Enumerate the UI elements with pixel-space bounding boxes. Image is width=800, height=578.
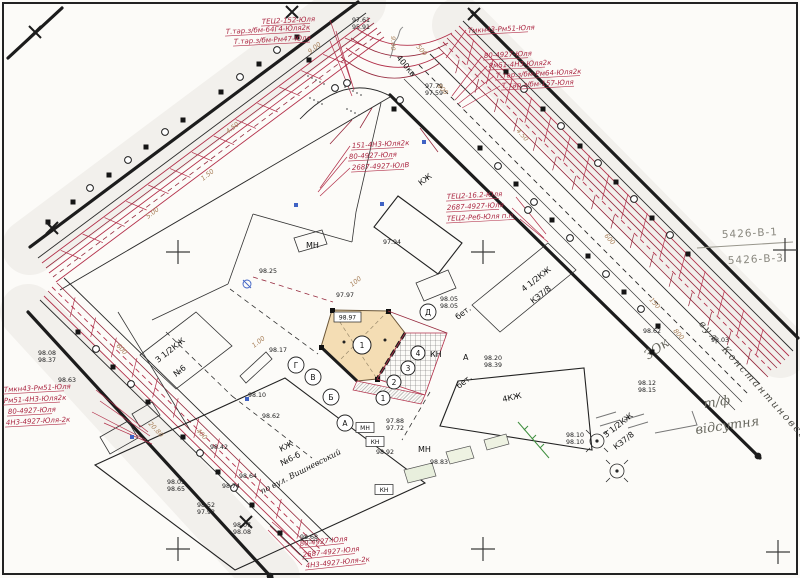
manhole-circle	[525, 207, 532, 214]
manhole-circle	[567, 235, 574, 242]
pole-square	[250, 503, 255, 508]
elevation-label: 98.39	[484, 362, 502, 369]
red-utility-annotation: 80-4927-Юля	[8, 405, 56, 416]
pole-square	[181, 118, 186, 123]
circled-number-label: 3	[406, 364, 411, 373]
pole-square	[216, 470, 221, 475]
pole-square	[614, 180, 619, 185]
elevation-label: 98.05	[440, 303, 458, 310]
handwritten-tf: т/ф	[702, 393, 731, 412]
elevation-box-value: 98.97	[339, 315, 356, 322]
manhole-circle	[162, 129, 169, 136]
elevation-label: 98.92	[376, 449, 394, 456]
elevation-label: 97.88	[386, 418, 404, 425]
distance-label: 5.00	[144, 205, 160, 220]
building-type-label: КН	[430, 350, 442, 359]
pole-square	[686, 252, 691, 257]
ground-dot	[350, 110, 352, 112]
ground-dot	[354, 112, 356, 114]
manhole-circle	[603, 271, 610, 278]
elevation-label: 98.63	[58, 377, 76, 384]
survey-plan-scan: 98.97	[0, 0, 800, 578]
cable-tick	[276, 499, 281, 518]
ground-dot	[358, 114, 360, 116]
manhole-circle	[344, 80, 351, 87]
cable-tick	[153, 378, 158, 397]
circled-number-label: 4	[416, 349, 421, 358]
manhole-circle	[495, 163, 502, 170]
circled-number-label: 1	[381, 394, 386, 403]
grid-cross	[471, 537, 495, 561]
circled-letter-label: В	[310, 373, 315, 382]
elevation-label: 97.94	[383, 239, 401, 246]
manhole-circle	[558, 123, 565, 130]
ground-dot	[315, 79, 317, 81]
boxed-structure-label: КН	[371, 439, 380, 446]
distance-label: 1.00	[250, 334, 266, 349]
circled-number-label: 2	[392, 378, 397, 387]
pole-square	[111, 365, 116, 370]
ground-dot	[346, 108, 348, 110]
building-type-label: КЖ	[278, 439, 295, 454]
pole-square	[181, 435, 186, 440]
elevation-label: 98.74	[222, 483, 240, 490]
manhole-circle	[274, 47, 281, 54]
elevation-label: 95.91	[352, 24, 370, 31]
elevation-label: 98.37	[38, 357, 56, 364]
grid-ref-top: 5426-В-1	[722, 226, 779, 241]
circled-letter-label: Д	[425, 308, 431, 317]
elevation-label: 98.20	[484, 355, 502, 362]
boxed-labels: МНКНКН	[356, 423, 393, 495]
manhole-circle	[125, 157, 132, 164]
cable-tick	[132, 358, 137, 377]
manhole-circle	[595, 160, 602, 167]
elevation-label: 98.10	[248, 392, 266, 399]
ground-dot	[313, 99, 315, 101]
pole-square	[650, 350, 655, 355]
pole-square	[307, 58, 312, 63]
building-type-label: по вул. Вишневський	[259, 447, 343, 496]
elevation-label: 97.97	[336, 292, 354, 299]
building-type-label: З 1/2КЖ	[154, 336, 187, 365]
ground-dot	[356, 92, 358, 94]
pole-square	[107, 173, 112, 178]
ground-dot	[360, 94, 362, 96]
boxed-structure-label: МН	[360, 425, 370, 432]
circled-number-label: 1	[360, 341, 365, 350]
pole-square	[550, 218, 555, 223]
building-type-label: 4КЖ	[502, 391, 523, 404]
elevation-label: 98.03	[711, 337, 729, 344]
manhole-circle	[332, 85, 339, 92]
ground-dot	[309, 97, 311, 99]
pole-square	[144, 145, 149, 150]
ground-dot	[323, 83, 325, 85]
building-type-label: А	[463, 353, 469, 362]
handwritten-absent: відсутня	[694, 414, 760, 438]
elevation-label: 98.05	[440, 296, 458, 303]
grid-cross	[166, 240, 190, 264]
boundary-x-marker	[29, 26, 41, 38]
subject-building: 98.97	[319, 308, 447, 404]
distance-label: 1.50	[199, 167, 215, 182]
distance-label: 150	[648, 296, 662, 311]
building-type-label: МН	[306, 241, 319, 250]
manhole-circle	[87, 185, 94, 192]
pole-square	[578, 144, 583, 149]
grid-cross	[166, 537, 190, 561]
distance-label: 100	[348, 275, 363, 289]
cable-tick	[91, 318, 96, 337]
manhole-circle	[667, 232, 674, 239]
pole-square	[278, 531, 283, 536]
grid-cross	[766, 540, 790, 564]
scan-smudge	[28, 2, 780, 578]
elevation-label: 98.42	[210, 444, 228, 451]
manhole-circle	[93, 346, 100, 353]
manhole-circle	[128, 381, 135, 388]
elevation-label: 98.07	[233, 522, 251, 529]
grid-ref-bottom: 5426-В-3	[728, 252, 785, 267]
elevation-label: 98.15	[638, 387, 656, 394]
circled-letter-label: Г	[294, 361, 299, 370]
pole-square	[650, 216, 655, 221]
ground-dot	[319, 81, 321, 83]
red-utility-annotation: 80-4927-Юля	[349, 150, 397, 161]
pole-square	[478, 146, 483, 151]
circled-letter-label: Б	[328, 393, 333, 402]
manhole-circle	[397, 97, 404, 104]
pole-square	[586, 254, 591, 259]
pole-square	[146, 400, 151, 405]
elevation-label: 98.12	[638, 380, 656, 387]
elevation-label: 98.65	[167, 486, 185, 493]
building-type-label: КЖ	[417, 171, 434, 187]
building-type-label: №6	[172, 363, 188, 378]
elevation-label: 98.17	[269, 347, 287, 354]
ground-dot	[352, 90, 354, 92]
elevation-label: 98.08	[38, 350, 56, 357]
elevation-label: 97.72	[386, 425, 404, 432]
boxed-structure-label: КН	[380, 487, 389, 494]
intersection-curb-curve	[300, 88, 390, 119]
elevation-label: 97.61	[352, 17, 370, 24]
elevation-label: 98.83	[430, 459, 448, 466]
elevation-label: 98.68	[300, 534, 318, 541]
grid-cross	[471, 240, 495, 264]
distance-label: 600	[603, 232, 617, 247]
elevation-label: 98.10	[566, 432, 584, 439]
elevation-label: 98.62	[262, 413, 280, 420]
elevation-label: 98.05	[167, 479, 185, 486]
manhole-circle	[197, 450, 204, 457]
manhole-circle	[531, 199, 538, 206]
ground-dot	[348, 88, 350, 90]
elevation-label: 98.64	[239, 473, 257, 480]
elevation-label: 98.25	[259, 268, 277, 275]
pole-square	[514, 182, 519, 187]
sheet-border	[3, 3, 797, 574]
cable-tick	[70, 297, 75, 317]
pole-square	[257, 62, 262, 67]
site-plan-drawing: 98.97	[0, 0, 800, 578]
elevation-label: 98.08	[233, 529, 251, 536]
green-gas-line	[518, 422, 549, 458]
elevation-label: 98.62	[643, 328, 661, 335]
pole-square	[76, 330, 81, 335]
ground-dot	[311, 77, 313, 79]
manhole-circle	[638, 306, 645, 313]
manhole-circle	[631, 196, 638, 203]
ground-dot	[307, 75, 309, 77]
pole-square	[541, 107, 546, 112]
elevation-label: 98.10	[566, 439, 584, 446]
manhole-circle	[237, 74, 244, 81]
pole-square	[392, 107, 397, 112]
ground-dot	[321, 103, 323, 105]
cable-tick	[173, 398, 178, 417]
elevation-label: 97.92	[197, 509, 215, 516]
circled-letter-label: А	[342, 419, 348, 428]
building-type-label: МН	[418, 445, 431, 454]
distance-label: 9.00	[389, 36, 397, 50]
pole-square	[219, 90, 224, 95]
pole-square	[71, 200, 76, 205]
ground-dot	[317, 101, 319, 103]
distance-label: 600	[115, 342, 129, 357]
pole-square	[622, 290, 627, 295]
elevation-label: 98.52	[197, 502, 215, 509]
building-type-label: бет.	[455, 373, 474, 391]
